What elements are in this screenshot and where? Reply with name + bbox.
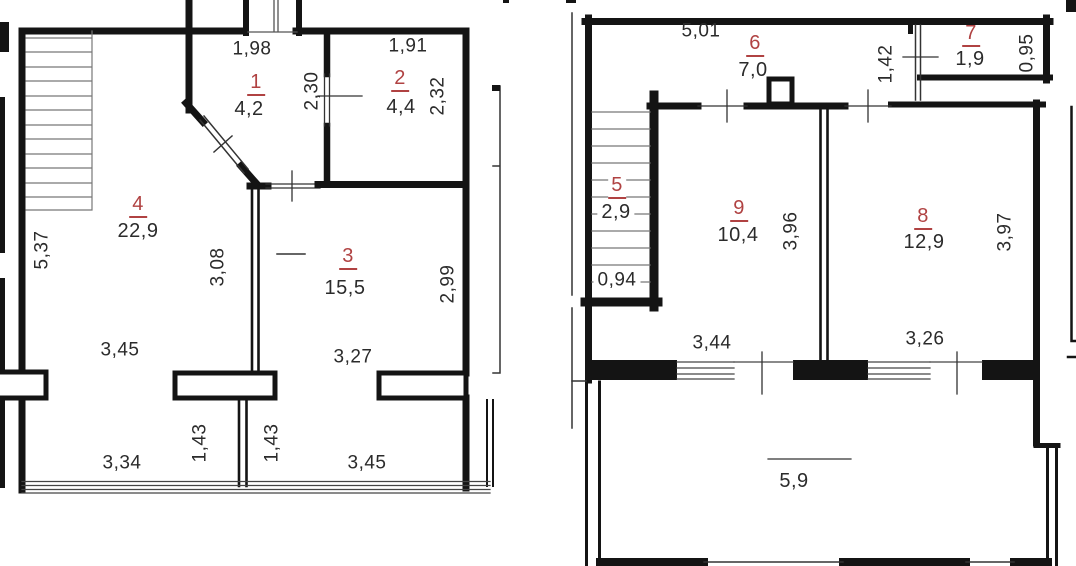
room-3-number: 3 (339, 246, 357, 270)
dim-room2-width: 1,91 (389, 37, 428, 56)
room3-door-opening (266, 184, 320, 188)
dim-room3-left-wall: 3,08 (209, 248, 228, 287)
dim-room3-width: 3,27 (334, 348, 373, 367)
left-edge-fragments (0, 22, 9, 488)
room9-window (677, 362, 734, 379)
room-2-area: 4,4 (386, 97, 415, 117)
floor1-boundary-line (493, 86, 500, 373)
room-5-area: 2,9 (597, 201, 634, 223)
center-pillar (175, 373, 275, 398)
top-edge-mark-b (566, 0, 576, 3)
terrace-right-wall (1048, 448, 1057, 566)
floor-plan-canvas: 1 4,2 2 4,4 3 15,5 4 22,9 1,98 1,91 2,30… (0, 0, 1076, 566)
top-edge-mark-a (503, 0, 509, 3)
partition-room4-room3 (252, 184, 259, 373)
right-edge-fragments (1068, 107, 1076, 357)
room8-window (868, 362, 930, 379)
room-8-area: 12,9 (904, 232, 945, 252)
dim-room8-height: 3,97 (996, 213, 1015, 252)
room-7-area: 1,9 (955, 49, 984, 69)
room7-left-thin-wall (916, 25, 921, 100)
dim-balcony-depth-left: 1,43 (191, 424, 210, 463)
dim-stair-height: 5,37 (33, 231, 52, 270)
room-4-area: 22,9 (118, 221, 159, 241)
terrace-left-wall (587, 382, 600, 566)
floor1-boundary-mark (492, 85, 500, 91)
dim-balcony-width-right: 3,45 (348, 454, 387, 473)
room-2-number: 2 (391, 68, 409, 92)
room-6-area: 7,0 (738, 60, 767, 80)
dim-hall-door: 1,42 (877, 45, 896, 84)
dim-room2-height: 2,32 (429, 77, 448, 116)
dim-balcony-width-left: 3,34 (103, 454, 142, 473)
room-5-number: 5 (608, 175, 626, 199)
duct-bump (769, 79, 792, 104)
floor2-bottom-wall-blocks (585, 360, 1040, 380)
balcony-divider-wall (239, 398, 247, 486)
partition-room9-room8 (821, 104, 828, 360)
dim-door12-height: 2,30 (303, 72, 322, 111)
dim-room9-window: 3,44 (693, 334, 732, 353)
room-6-number: 6 (746, 33, 764, 57)
dim-room9-height: 3,96 (782, 212, 801, 251)
dim-balcony-depth-right: 1,43 (263, 424, 282, 463)
room-1-number: 1 (247, 72, 265, 96)
dim-room1-width: 1,98 (233, 40, 272, 59)
room-1-area: 4,2 (234, 99, 263, 119)
dim-room8-window: 3,26 (906, 330, 945, 349)
left-pier (0, 372, 46, 398)
top-wall-notch (908, 25, 913, 34)
terrace-area: 5,9 (779, 471, 808, 491)
chimney-shaft (246, 0, 299, 33)
floor1-stairs (26, 31, 92, 210)
room-4-number: 4 (129, 194, 147, 218)
right-corner-fragment (1066, 0, 1076, 12)
right-outer-double-wall (487, 400, 493, 486)
dim-hall-width: 5,01 (682, 22, 721, 41)
floor1-window-band (22, 482, 490, 494)
room-7-number: 7 (962, 23, 980, 47)
dim-room4-width: 3,45 (101, 341, 140, 360)
room-8-number: 8 (914, 206, 932, 230)
door-room1-room2 (325, 74, 330, 126)
dim-stair-width: 0,94 (594, 270, 641, 291)
room-9-area: 10,4 (718, 225, 759, 245)
dim-room3-height: 2,99 (439, 265, 458, 304)
walls-layer (0, 0, 1076, 566)
dim-room7-depth: 0,95 (1018, 34, 1037, 73)
right-pillar (379, 373, 466, 398)
room-9-number: 9 (730, 198, 748, 222)
chimney-shaft-inner (248, 0, 297, 32)
room-3-area: 15,5 (325, 278, 366, 298)
